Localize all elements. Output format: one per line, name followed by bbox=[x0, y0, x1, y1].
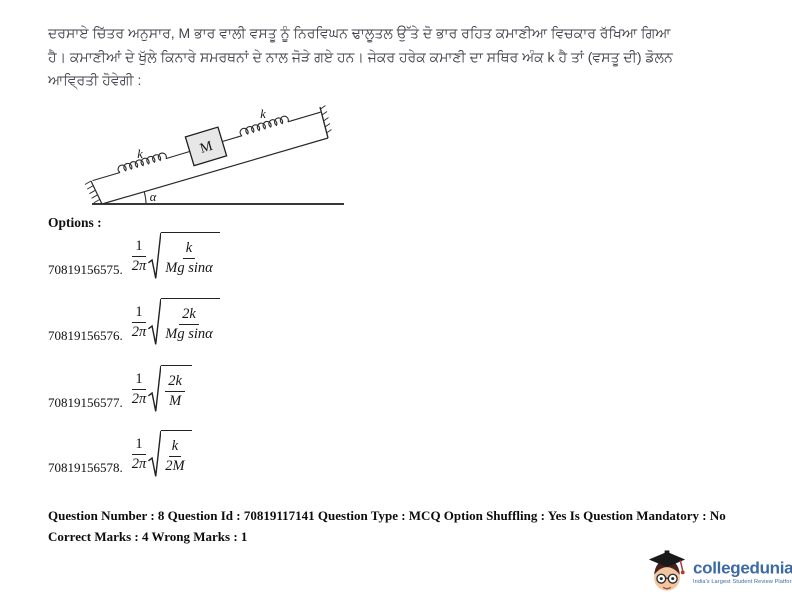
radical-sign-icon bbox=[148, 430, 161, 479]
option-id: 70819156576. bbox=[48, 328, 123, 347]
brand-logo[interactable]: collegedunia® India's Largest Student Re… bbox=[646, 545, 792, 597]
formula-coefficient: 1 2π bbox=[132, 238, 147, 275]
left-wall bbox=[85, 181, 102, 204]
coef-numerator: 1 bbox=[132, 436, 145, 455]
spring-lead-2 bbox=[166, 151, 190, 158]
radicand-denominator: Mg sinα bbox=[165, 259, 213, 277]
coef-denominator: 2π bbox=[132, 390, 147, 408]
radicand-numerator: k bbox=[169, 438, 181, 457]
spring-label-lower: k bbox=[137, 147, 143, 161]
angle-arc bbox=[144, 192, 146, 204]
radicand-numerator: 2k bbox=[179, 306, 199, 325]
right-wall bbox=[320, 106, 332, 139]
radical-sign-icon bbox=[148, 298, 161, 347]
radicand-denominator: Mg sinα bbox=[165, 325, 213, 343]
radicand-numerator: k bbox=[183, 240, 195, 259]
brand-tagline: India's Largest Student Review Platform bbox=[693, 579, 792, 585]
brand-text-wrap: collegedunia® India's Largest Student Re… bbox=[693, 557, 792, 585]
radical: 2k Mg sinα bbox=[148, 298, 220, 347]
brand-name: collegedunia® bbox=[693, 557, 792, 578]
radicand-denominator: 2M bbox=[165, 457, 184, 475]
question-line-1: ਦਰਸਾਏ ਚਿੱਤਰ ਅਨੁਸਾਰ, M ਭਾਰ ਵਾਲੀ ਵਸਤੂ ਨੂੰ … bbox=[48, 22, 754, 46]
angle-label: α bbox=[150, 190, 157, 204]
option-formula: 1 2π k Mg sinα bbox=[132, 232, 220, 281]
option-row: 70819156577. 1 2π 2k M bbox=[48, 365, 192, 414]
radicand: k 2M bbox=[161, 430, 191, 479]
formula-coefficient: 1 2π bbox=[132, 371, 147, 408]
coef-numerator: 1 bbox=[132, 304, 145, 323]
physics-diagram: M k k α bbox=[62, 100, 362, 215]
option-formula: 1 2π 2k M bbox=[132, 365, 192, 414]
radical: 2k M bbox=[148, 365, 192, 414]
question-meta-line2: Correct Marks : 4 Wrong Marks : 1 bbox=[48, 529, 247, 545]
mascot-icon bbox=[646, 545, 688, 597]
radical-sign-icon bbox=[148, 365, 161, 414]
option-id: 70819156578. bbox=[48, 460, 123, 479]
coef-denominator: 2π bbox=[132, 455, 147, 473]
radical-sign-icon bbox=[148, 232, 161, 281]
spring-lead-4 bbox=[288, 112, 321, 122]
spring-lead-3 bbox=[222, 136, 242, 142]
question-meta-line1: Question Number : 8 Question Id : 708191… bbox=[48, 508, 726, 524]
question-text: ਦਰਸਾਏ ਚਿੱਤਰ ਅਨੁਸਾਰ, M ਭਾਰ ਵਾਲੀ ਵਸਤੂ ਨੂੰ … bbox=[48, 22, 754, 93]
option-row: 70819156576. 1 2π 2k Mg sinα bbox=[48, 298, 220, 347]
formula-coefficient: 1 2π bbox=[132, 304, 147, 341]
spring-label-upper: k bbox=[260, 107, 266, 121]
option-formula: 1 2π 2k Mg sinα bbox=[132, 298, 220, 347]
option-id: 70819156577. bbox=[48, 395, 123, 414]
question-line-3: ਆਵ੍ਰਿਤੀ ਹੋਵੇਗੀ : bbox=[48, 69, 754, 93]
option-row: 70819156575. 1 2π k Mg sinα bbox=[48, 232, 220, 281]
radicand: 2k M bbox=[161, 365, 192, 414]
radicand: k Mg sinα bbox=[161, 232, 220, 281]
spring-lead-1 bbox=[93, 173, 121, 181]
option-id: 70819156575. bbox=[48, 262, 123, 281]
radical: k Mg sinα bbox=[148, 232, 220, 281]
mass-block: M bbox=[185, 127, 226, 166]
question-line-2: ਹੈ। ਕਮਾਣੀਆਂ ਦੇ ਖੁੱਲੇ ਕਿਨਾਰੇ ਸਮਰਥਨਾਂ ਦੇ ਨ… bbox=[48, 46, 754, 70]
radicand-numerator: 2k bbox=[165, 373, 185, 392]
coef-denominator: 2π bbox=[132, 257, 147, 275]
formula-coefficient: 1 2π bbox=[132, 436, 147, 473]
coef-numerator: 1 bbox=[132, 371, 145, 390]
radicand-denominator: M bbox=[169, 392, 181, 410]
radicand: 2k Mg sinα bbox=[161, 298, 220, 347]
option-formula: 1 2π k 2M bbox=[132, 430, 192, 479]
option-row: 70819156578. 1 2π k 2M bbox=[48, 430, 192, 479]
page: ਦਰਸਾਏ ਚਿੱਤਰ ਅਨੁਸਾਰ, M ਭਾਰ ਵਾਲੀ ਵਸਤੂ ਨੂੰ … bbox=[0, 0, 792, 612]
coef-numerator: 1 bbox=[132, 238, 145, 257]
radical: k 2M bbox=[148, 430, 191, 479]
coef-denominator: 2π bbox=[132, 323, 147, 341]
options-heading: Options : bbox=[48, 215, 102, 231]
